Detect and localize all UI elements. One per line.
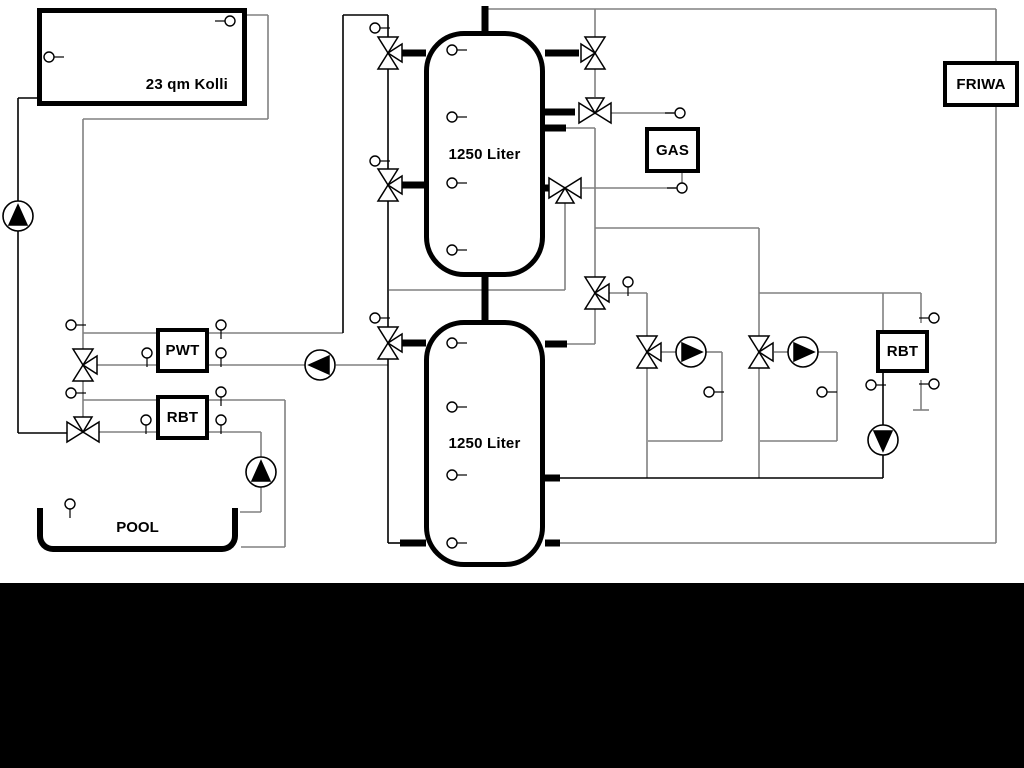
valve-arrow-icon [83, 356, 97, 374]
three-way-valve-icon [585, 37, 605, 53]
temperature-sensor-icon [216, 387, 226, 397]
schematic-page: { "labels": { "collector": "23 qm Kolli"… [0, 0, 1024, 768]
solar-collector-label: 23 qm Kolli [146, 76, 228, 93]
pump-direction-icon [252, 461, 270, 481]
temperature-sensor-icon [216, 348, 226, 358]
temperature-sensor-icon [370, 313, 380, 323]
valve-arrow-icon [595, 284, 609, 302]
pool-container: POOL [37, 508, 238, 552]
pump-direction-icon [794, 343, 814, 361]
temperature-sensor-icon [370, 23, 380, 33]
valve-arrow-icon [581, 44, 595, 62]
three-way-valve-icon [67, 422, 83, 442]
temperature-sensor-icon [370, 156, 380, 166]
temperature-sensor-icon [675, 108, 685, 118]
temperature-sensor-icon [216, 320, 226, 330]
three-way-valve-icon [73, 349, 93, 365]
three-way-valve-icon [579, 103, 595, 123]
pump-direction-icon [309, 356, 329, 374]
three-way-valve-icon [637, 352, 657, 368]
valve-branch-icon [74, 417, 92, 432]
three-way-valve-icon [378, 169, 398, 185]
three-way-valve-icon [378, 327, 398, 343]
pwt-heat-exchanger-box: PWT [156, 328, 209, 373]
valve-branch-icon [586, 98, 604, 113]
pump-icon [868, 425, 898, 455]
valve-arrow-icon [388, 334, 402, 352]
pump-direction-icon [682, 343, 702, 361]
rbt-right-label: RBT [887, 343, 918, 360]
pool-label: POOL [116, 519, 159, 536]
pwt-label: PWT [166, 342, 200, 359]
valve-arrow-icon [759, 343, 773, 361]
pump-icon [246, 457, 276, 487]
temperature-sensor-icon [66, 320, 76, 330]
valve-arrow-icon [388, 176, 402, 194]
three-way-valve-icon [549, 178, 565, 198]
three-way-valve-icon [637, 336, 657, 352]
valve-arrow-icon [388, 44, 402, 62]
three-way-valve-icon [585, 277, 605, 293]
three-way-valve-icon [378, 53, 398, 69]
buffer-tank-bottom: 1250 Liter [424, 320, 545, 567]
temperature-sensor-icon [141, 415, 151, 425]
buffer-tank-top-label: 1250 Liter [448, 146, 520, 163]
friwa-label: FRIWA [956, 76, 1005, 93]
buffer-tank-top: 1250 Liter [424, 31, 545, 277]
temperature-sensor-icon [929, 379, 939, 389]
three-way-valve-icon [73, 365, 93, 381]
temperature-sensor-icon [866, 380, 876, 390]
temperature-sensor-icon [623, 277, 633, 287]
pump-icon [676, 337, 706, 367]
diagram-canvas: 23 qm Kolli 1250 Liter 1250 Liter PWT RB… [0, 0, 1024, 583]
valve-arrow-icon [647, 343, 661, 361]
three-way-valve-icon [749, 336, 769, 352]
temperature-sensor-icon [216, 415, 226, 425]
buffer-tank-bottom-label: 1250 Liter [448, 435, 520, 452]
rbt-right-box: RBT [876, 330, 929, 373]
three-way-valve-icon [378, 185, 398, 201]
three-way-valve-icon [378, 343, 398, 359]
three-way-valve-icon [378, 37, 398, 53]
rbt-left-box: RBT [156, 395, 209, 440]
temperature-sensor-icon [817, 387, 827, 397]
pump-icon [3, 201, 33, 231]
temperature-sensor-icon [929, 313, 939, 323]
temperature-sensor-icon [66, 388, 76, 398]
three-way-valve-icon [585, 293, 605, 309]
three-way-valve-icon [565, 178, 581, 198]
temperature-sensor-icon [677, 183, 687, 193]
gas-boiler-box: GAS [645, 127, 700, 173]
pump-direction-icon [874, 431, 892, 451]
three-way-valve-icon [595, 103, 611, 123]
gas-label: GAS [656, 142, 689, 159]
pump-icon [305, 350, 335, 380]
solar-collector-box: 23 qm Kolli [37, 8, 247, 106]
three-way-valve-icon [83, 422, 99, 442]
three-way-valve-icon [749, 352, 769, 368]
temperature-sensor-icon [704, 387, 714, 397]
rbt-left-label: RBT [167, 409, 198, 426]
valve-branch-icon [556, 188, 574, 203]
temperature-sensor-icon [142, 348, 152, 358]
pump-icon [788, 337, 818, 367]
three-way-valve-icon [585, 53, 605, 69]
friwa-station-box: FRIWA [943, 61, 1019, 107]
pump-direction-icon [9, 205, 27, 225]
